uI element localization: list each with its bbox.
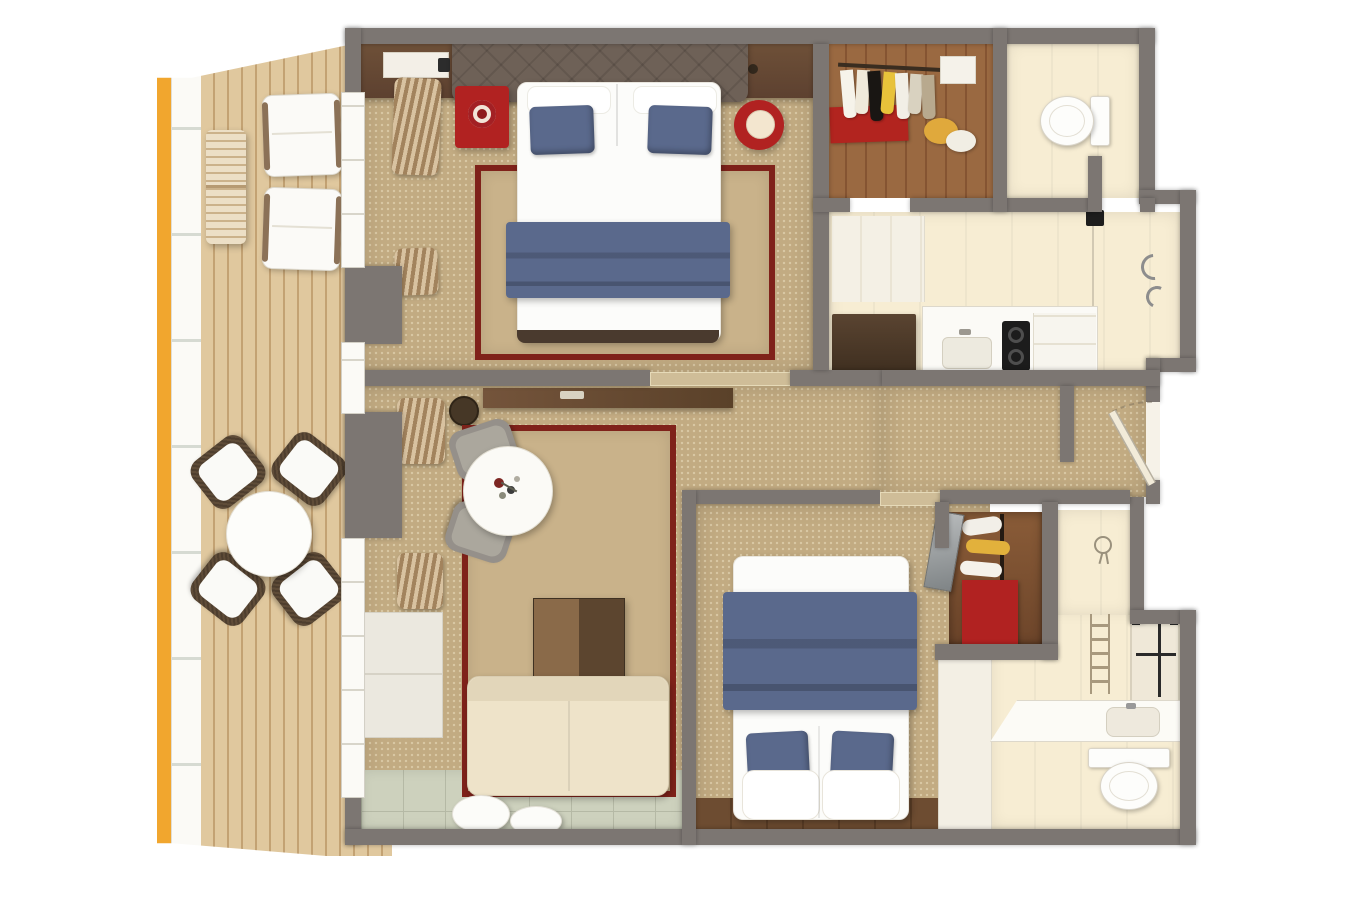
shower-enclosure — [1130, 617, 1180, 702]
wall-wardrobe-right — [1042, 502, 1058, 660]
chair-seat-line — [272, 131, 332, 135]
desk-accessory — [438, 58, 450, 72]
garment — [921, 75, 936, 119]
shower-head-glyph — [1094, 536, 1112, 554]
bed-footboard — [517, 330, 719, 343]
entry-door-opening — [1146, 402, 1160, 480]
bed-runner — [723, 592, 917, 710]
vanity-counter — [990, 700, 1184, 742]
bed-sheet-crease — [818, 726, 820, 818]
lounge-chair — [262, 187, 343, 272]
bed-runner — [506, 222, 730, 298]
wooden-stool — [449, 396, 479, 426]
wall-right-bath1 — [1180, 190, 1196, 372]
coffee-table — [533, 598, 625, 688]
accent-pillow — [529, 105, 595, 155]
shelf-box — [940, 56, 976, 84]
side-cabinet — [361, 612, 443, 738]
balcony-railing — [171, 28, 203, 870]
white-pillow — [742, 770, 820, 820]
wall-closet-toilet-divider — [993, 28, 1007, 212]
accent-pillow — [647, 105, 713, 155]
sofa — [467, 676, 669, 796]
chair-arm — [262, 194, 270, 262]
pouf — [452, 795, 510, 833]
vanity-slab — [938, 658, 992, 831]
wall-hung-toilet — [1040, 96, 1094, 146]
flower — [514, 476, 520, 482]
balcony-door-master — [341, 92, 365, 268]
wall-closet-bottom-a — [813, 198, 850, 212]
wall-bedroom2-top-a — [696, 490, 880, 504]
flower — [499, 492, 506, 499]
shoe-shelf-item — [959, 560, 1002, 578]
wall-right-lower — [1180, 610, 1196, 845]
bedroom2-door-threshold — [880, 492, 942, 506]
toilet-bowl-rim — [1049, 105, 1085, 137]
wall-toilet-stub — [1088, 156, 1102, 212]
wall-top — [345, 28, 1155, 44]
chair-seat-line — [272, 225, 332, 229]
wall-fixture — [1086, 210, 1104, 226]
wall-bedroom1-living-a — [345, 370, 650, 386]
towel-shelf — [397, 553, 443, 609]
second-bathroom-upper-floor — [1056, 510, 1132, 615]
patio-dining-table — [226, 491, 312, 577]
wall-bottom — [345, 829, 1196, 845]
table-divider — [206, 185, 246, 188]
cabinet-divider — [362, 673, 442, 675]
sink — [1106, 707, 1160, 737]
white-pillow — [822, 770, 900, 820]
wall-kitchenette-bottom — [882, 370, 1160, 386]
alarm-clock — [468, 100, 496, 128]
wall-closet-bottom-c — [1140, 198, 1155, 212]
wall-entry-jamb-bottom — [1146, 480, 1160, 504]
wall-bedroom1-living-b — [790, 370, 882, 386]
toilet — [1100, 762, 1158, 810]
floor-plan — [0, 0, 1368, 912]
kitchenette-counter — [922, 306, 1098, 374]
towel-shelf — [397, 398, 445, 464]
shelf-accessory — [748, 64, 758, 74]
lounge-chair — [262, 93, 343, 178]
burner — [1008, 349, 1024, 365]
red-cabinet — [962, 580, 1018, 650]
toilet-bowl-rim — [1109, 771, 1149, 801]
bag — [946, 130, 976, 152]
sliding-door-threshold — [650, 372, 792, 386]
chair-arm — [262, 102, 270, 170]
tall-dark-cabinet — [832, 314, 916, 372]
wall-pier-living — [345, 412, 402, 538]
shoe-shelf-item — [961, 515, 1003, 536]
bed-sheet-crease — [616, 84, 618, 146]
two-burner-cooktop — [1002, 321, 1030, 371]
burner — [1008, 327, 1024, 343]
sofa-seat-split — [568, 701, 570, 791]
balcony-door-middle — [341, 342, 365, 414]
wall-living-bedroom2-divider — [682, 490, 696, 845]
glass-partition — [832, 216, 925, 302]
curtains — [391, 77, 441, 176]
sideboard — [483, 388, 733, 408]
red-side-table-top — [746, 110, 775, 139]
sofa-back — [468, 677, 668, 701]
sink — [942, 337, 992, 369]
wall-wardrobe-left-jamb — [935, 502, 949, 548]
wardrobe — [949, 512, 1044, 646]
wall-right-mid — [1130, 497, 1144, 623]
appliance-cabinet — [1033, 313, 1096, 371]
flower-centerpiece — [492, 474, 526, 504]
shower-door-handle — [1136, 653, 1176, 656]
shower-glass-frame — [1158, 621, 1161, 697]
wall-pier-bedroom1 — [345, 266, 402, 344]
shoe-shelf-item — [966, 538, 1011, 555]
balcony-door-living — [341, 538, 365, 798]
slatted-table — [206, 130, 246, 244]
wall-right-upper — [1139, 28, 1155, 204]
wall-wardrobe-bottom — [935, 644, 1058, 660]
faucet — [959, 329, 971, 335]
sideboard-accessory — [560, 391, 584, 399]
wall-bedroom2-top-b — [940, 490, 1130, 504]
hallway-floor — [882, 386, 1146, 497]
wall-hallway-stub — [1060, 386, 1074, 462]
towel-ladder — [1090, 614, 1110, 694]
hull-accent-stripe — [157, 28, 171, 868]
faucet — [1126, 703, 1136, 709]
